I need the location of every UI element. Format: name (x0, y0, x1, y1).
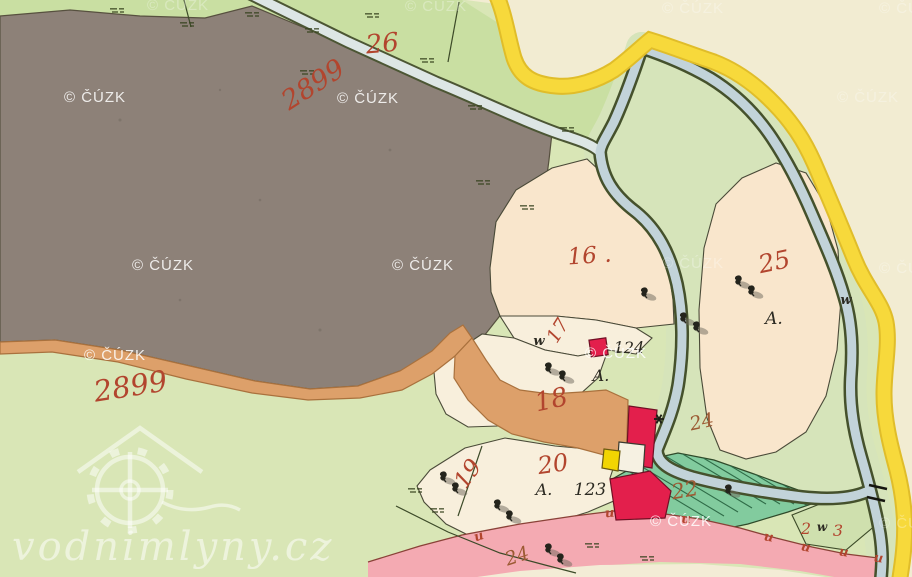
parcel-label-23-digit: 2 (800, 519, 811, 538)
cuzk-watermark: © ČÚZK (64, 89, 126, 106)
cuzk-watermark: © ČÚZK (662, 255, 724, 272)
parcel-label-22: 22 (669, 476, 700, 504)
cuzk-watermark: © ČÚZK (392, 257, 454, 274)
cuzk-watermark: © ČÚZK (147, 0, 209, 14)
cuzk-watermark: © ČÚZK (84, 347, 146, 364)
building-yellow-annex (602, 449, 620, 471)
u-mark: u (604, 506, 615, 522)
parcel-label-16: 16 . (567, 242, 613, 271)
cuzk-watermark: © ČÚZK (662, 0, 724, 17)
map-svg: 26 2899 2899 16 . 17 18 19 20 25 2 3 22 … (0, 0, 912, 577)
cuzk-watermark: © ČÚZK (585, 345, 647, 362)
meadow-mark-w-right: w (840, 293, 852, 308)
meadow-mark-w-left: w (533, 334, 545, 349)
house-number-123: 123 (574, 480, 606, 500)
cuzk-watermark: © ČÚZK (405, 0, 467, 15)
cuzk-watermark: © ČÚZK (337, 90, 399, 107)
letter-a-parcel20: A. (534, 480, 553, 499)
parcel-label-20: 20 (535, 448, 570, 480)
letter-a-parcel25: A. (763, 309, 783, 329)
cuzk-watermark: © ČÚZK (132, 257, 194, 274)
cuzk-watermark: © ČÚZK (879, 0, 912, 17)
meadow-mark-w-23: w (817, 520, 828, 534)
parcel-label-23-digit: 3 (833, 521, 843, 540)
cuzk-watermark: © ČÚZK (650, 513, 712, 530)
building-white-annex (617, 442, 645, 474)
parcel-label-26: 26 (364, 28, 401, 61)
cuzk-watermark: © ČÚZK (837, 89, 899, 106)
cuzk-watermark: © ČÚZK (879, 515, 912, 532)
cuzk-watermark: © ČÚZK (879, 260, 912, 277)
cadastral-map-canvas: 26 2899 2899 16 . 17 18 19 20 25 2 3 22 … (0, 0, 912, 577)
site-watermark: vodnimlyny.cz (12, 524, 334, 570)
letter-a-parcel18: A. (591, 366, 610, 385)
